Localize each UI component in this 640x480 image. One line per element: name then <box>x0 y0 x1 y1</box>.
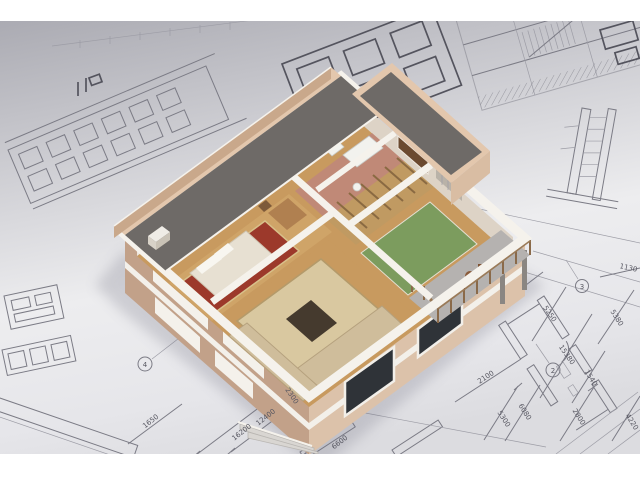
scene-canvas: 4 2 3 <box>0 0 640 480</box>
grid-bubble-3-label: 3 <box>580 283 584 291</box>
architectural-render: 4 2 3 <box>0 0 640 480</box>
toilet <box>353 183 361 191</box>
letterbox-top <box>0 0 640 21</box>
grid-bubble-2-label: 2 <box>551 367 555 375</box>
grid-bubble-4-label: 4 <box>143 361 148 369</box>
letterbox-bottom <box>0 454 640 480</box>
